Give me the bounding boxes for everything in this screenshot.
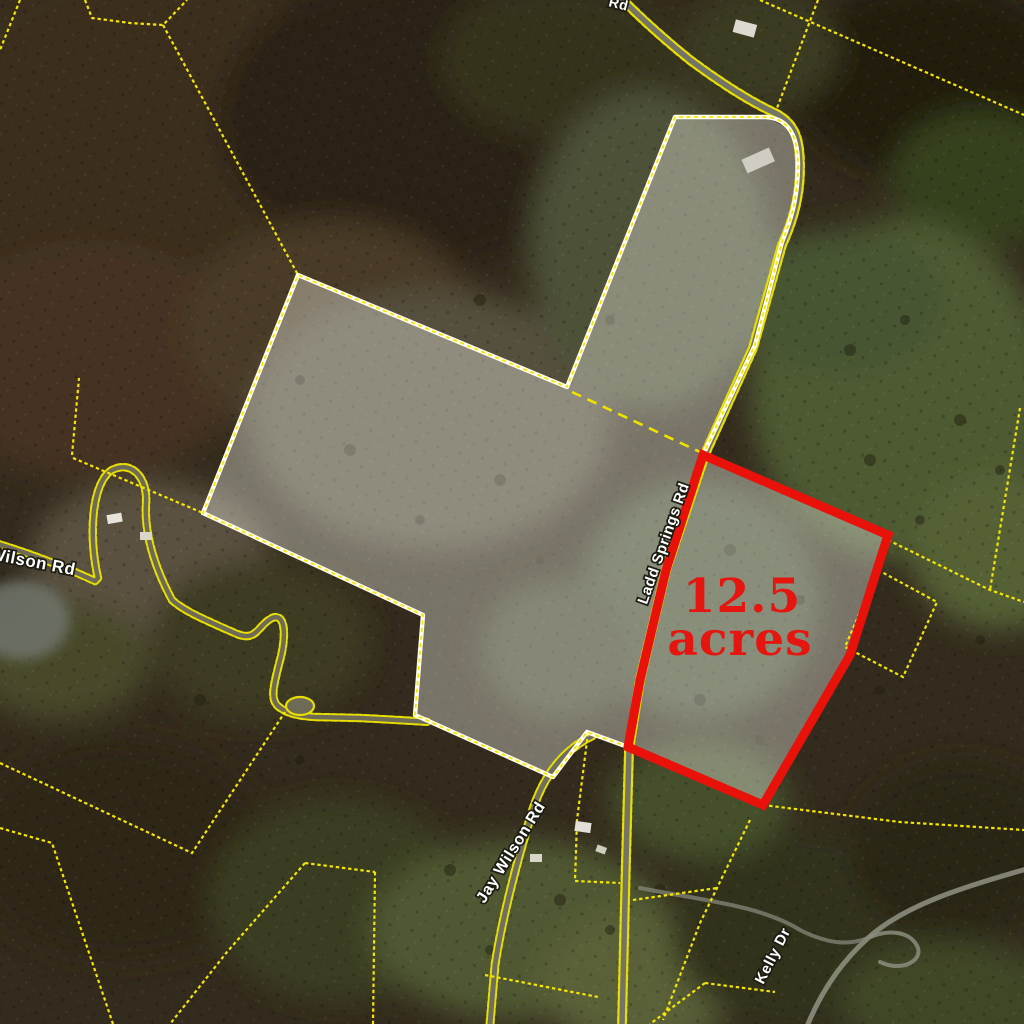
map-canvas: Jay Wilson Rd Jay Wilson Rd Ladd Springs… bbox=[0, 0, 1024, 1024]
acreage-label: 12.5 acres bbox=[667, 569, 812, 667]
parcel-map-image[interactable]: Jay Wilson Rd Jay Wilson Rd Ladd Springs… bbox=[0, 0, 1024, 1024]
culdesac-loop bbox=[286, 697, 314, 715]
acreage-unit: acres bbox=[667, 612, 812, 667]
